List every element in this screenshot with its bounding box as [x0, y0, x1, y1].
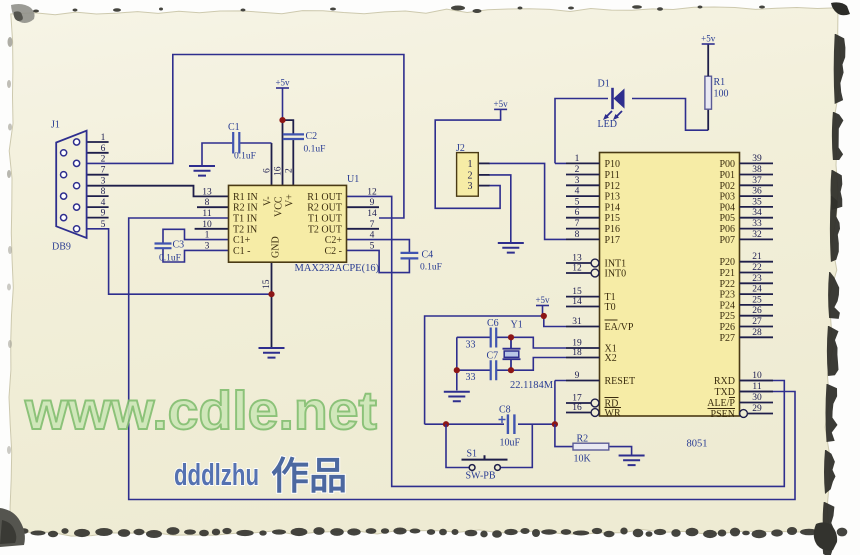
- svg-text:0.1uF: 0.1uF: [304, 145, 326, 155]
- svg-text:16: 16: [572, 403, 582, 413]
- svg-text:GND: GND: [271, 236, 282, 258]
- svg-text:3: 3: [575, 176, 580, 186]
- svg-text:+5v: +5v: [535, 295, 550, 305]
- svg-text:P01: P01: [719, 170, 735, 181]
- svg-text:C1+: C1+: [233, 235, 251, 246]
- svg-text:38: 38: [752, 165, 762, 175]
- svg-text:14: 14: [367, 209, 377, 219]
- svg-text:36: 36: [752, 187, 762, 197]
- svg-text:T2 OUT: T2 OUT: [308, 224, 342, 235]
- svg-text:15: 15: [572, 287, 582, 297]
- svg-text:2: 2: [101, 154, 106, 164]
- svg-text:32: 32: [752, 230, 762, 240]
- svg-text:33: 33: [752, 219, 762, 229]
- svg-text:33: 33: [466, 340, 476, 351]
- svg-text:P20: P20: [719, 257, 735, 268]
- svg-text:22.1184M: 22.1184M: [510, 380, 554, 391]
- svg-text:3: 3: [205, 241, 210, 251]
- svg-text:TXD: TXD: [714, 387, 735, 398]
- svg-text:13: 13: [572, 254, 582, 264]
- svg-text:4: 4: [370, 231, 375, 241]
- svg-text:1: 1: [575, 154, 580, 164]
- svg-text:P22: P22: [719, 279, 735, 290]
- svg-text:34: 34: [752, 208, 762, 218]
- svg-text:LED: LED: [598, 119, 617, 130]
- svg-text:R1 OUT: R1 OUT: [307, 192, 342, 203]
- svg-text:C2: C2: [306, 131, 318, 142]
- svg-text:8: 8: [575, 230, 580, 240]
- svg-text:C4: C4: [422, 250, 434, 261]
- svg-text:8: 8: [101, 187, 106, 197]
- svg-text:13: 13: [202, 187, 212, 197]
- svg-text:9: 9: [370, 198, 375, 208]
- svg-text:R2: R2: [577, 434, 589, 445]
- svg-text:10uF: 10uF: [500, 438, 521, 449]
- svg-text:7: 7: [370, 220, 375, 230]
- svg-text:P14: P14: [605, 202, 621, 213]
- svg-text:18: 18: [572, 348, 582, 358]
- svg-text:6: 6: [575, 208, 580, 218]
- svg-text:T2 IN: T2 IN: [233, 224, 257, 235]
- svg-text:P11: P11: [605, 170, 620, 181]
- svg-text:0.1uF: 0.1uF: [159, 254, 181, 264]
- svg-text:3: 3: [101, 177, 106, 187]
- svg-text:C3: C3: [173, 240, 185, 251]
- svg-text:INT0: INT0: [605, 269, 627, 280]
- svg-text:C1: C1: [228, 122, 240, 133]
- svg-text:22: 22: [752, 263, 762, 273]
- svg-text:2: 2: [285, 168, 295, 173]
- svg-text:作品: 作品: [271, 456, 347, 498]
- svg-text:EA/VP: EA/VP: [605, 322, 634, 333]
- svg-text:S1: S1: [467, 449, 478, 460]
- svg-text:P23: P23: [719, 290, 735, 301]
- svg-text:2: 2: [468, 170, 473, 181]
- svg-text:10: 10: [202, 220, 212, 230]
- svg-text:25: 25: [752, 295, 762, 305]
- svg-text:30: 30: [752, 393, 762, 403]
- svg-text:1: 1: [468, 159, 473, 170]
- svg-text:C8: C8: [499, 405, 511, 416]
- svg-text:P13: P13: [605, 192, 621, 203]
- svg-text:X2: X2: [605, 353, 617, 364]
- svg-text:5: 5: [370, 241, 375, 251]
- svg-text:dddlzhu: dddlzhu: [174, 457, 259, 492]
- svg-text:26: 26: [752, 306, 762, 316]
- svg-text:0.1uF: 0.1uF: [420, 263, 442, 273]
- svg-text:10K: 10K: [574, 454, 592, 465]
- svg-text:D1: D1: [598, 79, 610, 90]
- svg-text:24: 24: [752, 285, 762, 295]
- svg-text:11: 11: [202, 209, 211, 219]
- svg-text:31: 31: [572, 317, 582, 327]
- svg-text:WR: WR: [605, 408, 621, 419]
- svg-text:+5v: +5v: [494, 99, 509, 109]
- svg-text:R2 IN: R2 IN: [233, 203, 258, 214]
- svg-text:8: 8: [205, 198, 210, 208]
- svg-text:21: 21: [752, 252, 762, 262]
- svg-text:33: 33: [466, 372, 476, 383]
- svg-text:J2: J2: [456, 143, 465, 154]
- svg-text:100: 100: [714, 89, 729, 100]
- svg-text:RESET: RESET: [605, 376, 636, 387]
- svg-text:C7: C7: [487, 351, 499, 362]
- svg-text:12: 12: [367, 187, 377, 197]
- svg-text:U1: U1: [347, 174, 359, 185]
- svg-text:5: 5: [575, 197, 580, 207]
- svg-text:10: 10: [752, 371, 762, 381]
- svg-text:T1 IN: T1 IN: [233, 214, 257, 225]
- svg-text:29: 29: [752, 404, 762, 414]
- svg-text:C6: C6: [487, 318, 499, 329]
- svg-text:5: 5: [101, 220, 106, 230]
- svg-text:8051: 8051: [687, 439, 708, 450]
- svg-text:C2 -: C2 -: [325, 246, 343, 257]
- svg-text:P06: P06: [719, 224, 735, 235]
- svg-text:37: 37: [752, 176, 762, 186]
- svg-text:1: 1: [101, 133, 106, 143]
- svg-text:T0: T0: [605, 302, 616, 313]
- svg-text:P02: P02: [719, 181, 735, 192]
- svg-text:MAX232ACPE(16): MAX232ACPE(16): [295, 263, 380, 274]
- svg-text:P10: P10: [605, 159, 621, 170]
- svg-text:C2+: C2+: [325, 235, 343, 246]
- svg-text:P07: P07: [719, 235, 735, 246]
- svg-text:3: 3: [468, 181, 473, 192]
- svg-text:1: 1: [205, 231, 210, 241]
- svg-text:R2 OUT: R2 OUT: [307, 203, 342, 214]
- svg-text:P26: P26: [719, 322, 735, 333]
- svg-text:11: 11: [752, 382, 761, 392]
- svg-text:P16: P16: [605, 224, 621, 235]
- svg-text:PSEN: PSEN: [711, 409, 735, 420]
- svg-text:35: 35: [752, 197, 762, 207]
- svg-text:P21: P21: [719, 268, 735, 279]
- svg-text:DB9: DB9: [52, 242, 71, 253]
- svg-text:+5v: +5v: [701, 34, 716, 44]
- svg-text:P04: P04: [719, 202, 735, 213]
- svg-text:12: 12: [572, 264, 582, 274]
- svg-text:9: 9: [575, 371, 580, 381]
- svg-text:ALE/P: ALE/P: [707, 398, 735, 409]
- svg-text:P25: P25: [719, 311, 735, 322]
- svg-text:P03: P03: [719, 192, 735, 203]
- svg-text:Y1: Y1: [511, 320, 523, 331]
- svg-text:9: 9: [101, 209, 106, 219]
- svg-text:P00: P00: [719, 159, 735, 170]
- svg-text:2: 2: [575, 165, 580, 175]
- svg-text:R1: R1: [714, 77, 726, 88]
- svg-text:C1 -: C1 -: [233, 246, 251, 257]
- svg-text:4: 4: [575, 187, 580, 197]
- svg-text:V-: V-: [263, 196, 274, 206]
- svg-text:T1 OUT: T1 OUT: [308, 214, 342, 225]
- svg-text:RXD: RXD: [714, 376, 735, 387]
- svg-text:J1: J1: [51, 120, 60, 131]
- svg-text:15: 15: [262, 279, 272, 289]
- svg-text:16: 16: [274, 166, 284, 176]
- svg-text:17: 17: [572, 394, 582, 404]
- svg-text:VCC: VCC: [274, 196, 285, 217]
- svg-text:6: 6: [263, 168, 273, 173]
- svg-text:P05: P05: [719, 213, 735, 224]
- svg-text:14: 14: [572, 297, 582, 307]
- svg-text:7: 7: [575, 219, 580, 229]
- svg-text:27: 27: [752, 317, 762, 327]
- svg-text:P17: P17: [605, 235, 621, 246]
- svg-text:23: 23: [752, 274, 762, 284]
- svg-text:4: 4: [101, 198, 106, 208]
- svg-text:P15: P15: [605, 213, 621, 224]
- svg-text:V+: V+: [285, 194, 296, 207]
- svg-text:www.cdle.net: www.cdle.net: [24, 381, 377, 441]
- svg-text:P27: P27: [719, 333, 735, 344]
- svg-text:7: 7: [101, 166, 106, 176]
- svg-text:+5v: +5v: [275, 78, 290, 88]
- svg-text:P24: P24: [719, 300, 735, 311]
- svg-text:6: 6: [101, 144, 106, 154]
- svg-text:R1 IN: R1 IN: [233, 192, 258, 203]
- svg-text:P12: P12: [605, 181, 621, 192]
- svg-text:19: 19: [572, 339, 582, 349]
- svg-text:28: 28: [752, 328, 762, 338]
- svg-text:SW-PB: SW-PB: [466, 471, 496, 482]
- svg-text:0.1uF: 0.1uF: [234, 152, 256, 162]
- svg-text:39: 39: [752, 154, 762, 164]
